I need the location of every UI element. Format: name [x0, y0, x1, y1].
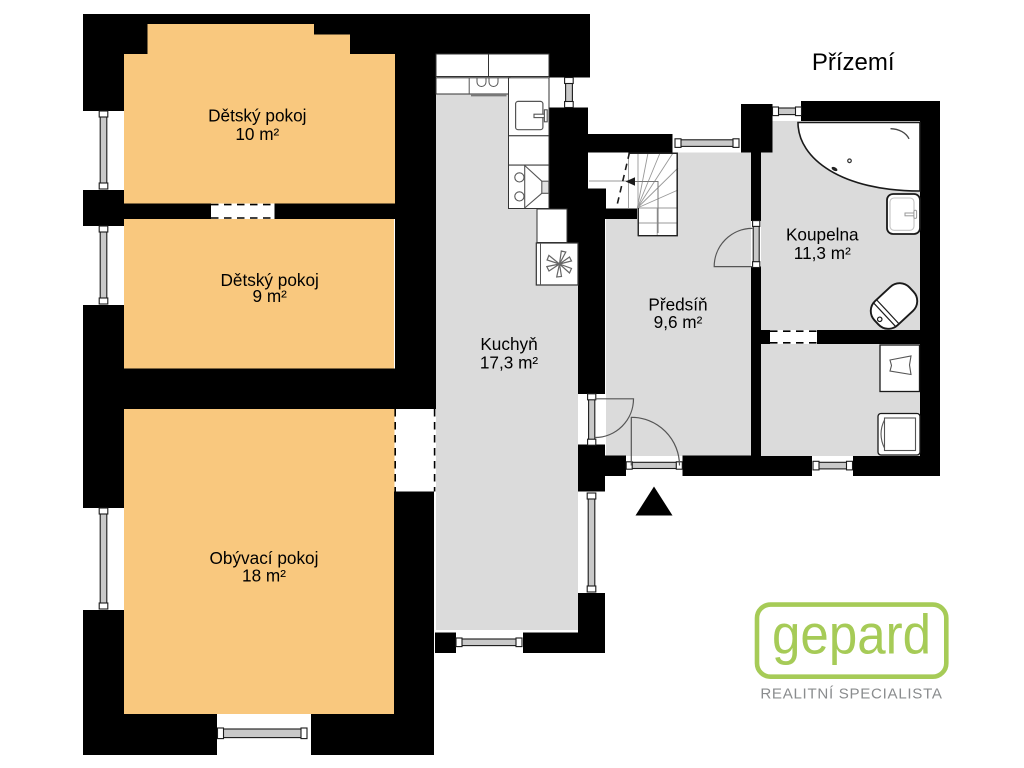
svg-text:17,3 m²: 17,3 m²	[480, 353, 539, 373]
svg-text:11,3 m²: 11,3 m²	[794, 243, 851, 263]
svg-text:Přízemí: Přízemí	[812, 49, 895, 76]
svg-text:gepard: gepard	[772, 603, 931, 666]
svg-text:Dětský pokoj: Dětský pokoj	[208, 105, 306, 125]
svg-text:18 m²: 18 m²	[242, 565, 286, 585]
svg-text:REALITNÍ SPECIALISTA: REALITNÍ SPECIALISTA	[760, 686, 943, 703]
svg-text:9,6 m²: 9,6 m²	[654, 312, 703, 332]
svg-text:Koupelna: Koupelna	[786, 225, 859, 245]
svg-text:10 m²: 10 m²	[235, 124, 279, 144]
svg-text:Kuchyň: Kuchyň	[480, 334, 537, 354]
svg-text:9 m²: 9 m²	[253, 286, 288, 306]
